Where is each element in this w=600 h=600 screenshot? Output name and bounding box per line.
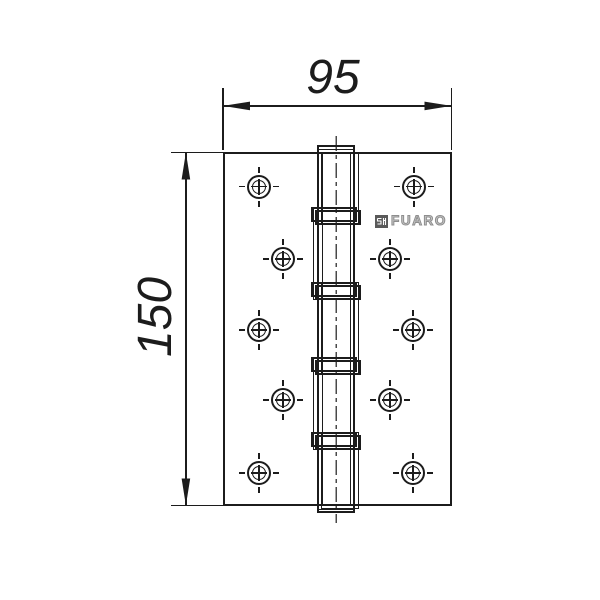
hole-tick-bottom xyxy=(389,414,390,420)
hole-tick-right xyxy=(297,399,303,400)
hole-tick-left xyxy=(263,399,269,400)
hole-tick-left xyxy=(239,472,245,473)
hole-tick-right xyxy=(273,472,279,473)
hole-cross-vertical xyxy=(413,179,414,195)
hole-tick-bottom xyxy=(282,273,283,279)
hole-tick-right xyxy=(427,472,433,473)
hole-tick-left xyxy=(393,329,399,330)
hole-tick-top xyxy=(412,310,413,316)
hole-tick-left xyxy=(394,186,400,187)
hole-tick-left xyxy=(263,258,269,259)
hole-tick-left xyxy=(393,472,399,473)
hole-tick-top xyxy=(389,380,390,386)
hole-tick-bottom xyxy=(412,344,413,350)
screw-hole xyxy=(239,167,279,207)
hole-tick-bottom xyxy=(282,414,283,420)
hole-cross-vertical xyxy=(412,465,413,481)
hole-tick-top xyxy=(258,310,259,316)
drawing-canvas: 95 150 FUARO xyxy=(0,0,600,600)
hole-cross-vertical xyxy=(258,179,259,195)
arrow-left-icon xyxy=(223,102,250,111)
barrel-inner-line xyxy=(350,153,351,505)
hole-cross-vertical xyxy=(389,251,390,267)
hole-cross-vertical xyxy=(412,322,413,338)
hole-tick-right xyxy=(297,258,303,259)
hole-tick-top xyxy=(413,167,414,173)
hole-tick-left xyxy=(239,329,245,330)
screw-hole xyxy=(239,310,279,350)
screw-hole xyxy=(263,380,303,420)
hole-tick-left xyxy=(370,258,376,259)
screw-hole xyxy=(239,453,279,493)
hole-tick-bottom xyxy=(258,201,259,207)
arrow-down-icon xyxy=(182,479,191,506)
barrel-cap-line xyxy=(317,149,355,150)
hole-tick-right xyxy=(428,186,434,187)
hole-tick-top xyxy=(282,380,283,386)
hole-tick-top xyxy=(282,239,283,245)
hole-tick-bottom xyxy=(412,487,413,493)
hole-tick-bottom xyxy=(258,344,259,350)
screw-hole xyxy=(393,310,433,350)
hole-tick-right xyxy=(273,186,279,187)
hole-tick-top xyxy=(258,167,259,173)
hole-tick-bottom xyxy=(389,273,390,279)
hole-cross-vertical xyxy=(282,392,283,408)
hole-tick-top xyxy=(389,239,390,245)
hole-tick-bottom xyxy=(413,201,414,207)
hole-tick-top xyxy=(258,453,259,459)
hole-cross-vertical xyxy=(258,465,259,481)
hole-cross-vertical xyxy=(282,251,283,267)
screw-hole xyxy=(394,167,434,207)
hole-tick-bottom xyxy=(258,487,259,493)
screw-hole xyxy=(370,380,410,420)
barrel-cap-line xyxy=(317,509,355,510)
barrel-inner-line xyxy=(322,153,323,505)
screw-hole xyxy=(263,239,303,279)
screw-hole xyxy=(393,453,433,493)
hole-tick-right xyxy=(404,258,410,259)
hole-cross-vertical xyxy=(389,392,390,408)
hole-cross-vertical xyxy=(258,322,259,338)
screw-hole xyxy=(370,239,410,279)
hole-tick-right xyxy=(427,329,433,330)
hole-tick-left xyxy=(239,186,245,187)
hole-tick-right xyxy=(273,329,279,330)
arrow-up-icon xyxy=(182,153,191,180)
arrow-right-icon xyxy=(425,102,452,111)
hole-tick-left xyxy=(370,399,376,400)
hole-tick-top xyxy=(412,453,413,459)
hole-tick-right xyxy=(404,399,410,400)
